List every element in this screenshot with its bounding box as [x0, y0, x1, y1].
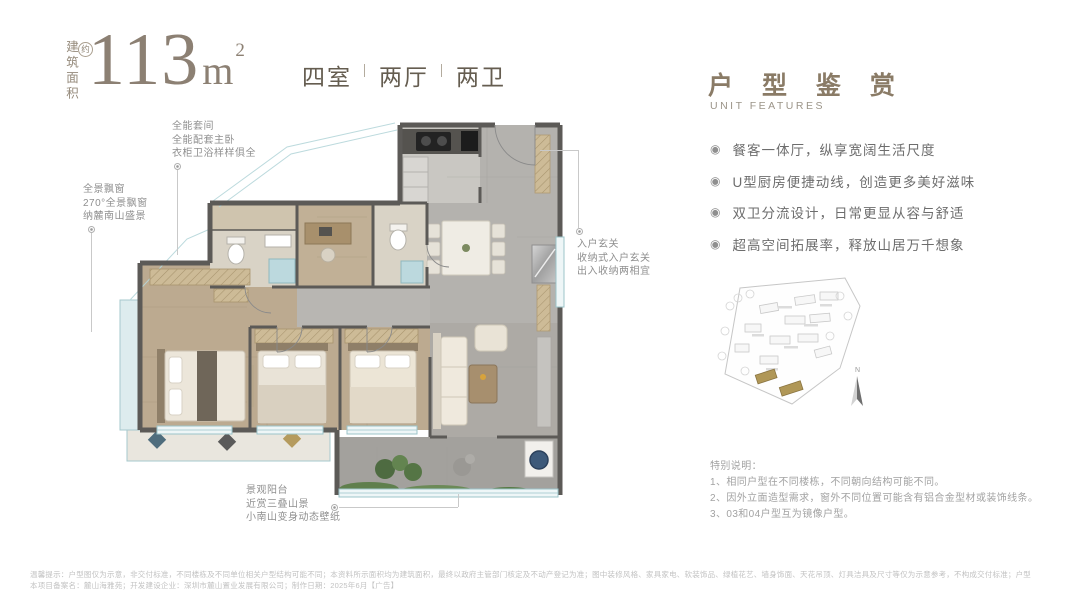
- bedroom2-bed: [256, 343, 328, 423]
- unit-features-subtitle: UNIT FEATURES: [710, 100, 825, 112]
- annotation-balcony-leader-h: [339, 507, 458, 508]
- unit-features-title: 户 型 鉴 赏: [708, 66, 906, 102]
- annotation-balcony-leader-v: [458, 494, 459, 507]
- bullet-icon: ◉: [710, 205, 720, 219]
- annotation-entrance: 入户玄关 收纳式入户玄关 出入收纳两相宜: [577, 238, 651, 279]
- area-number: 113: [88, 18, 199, 103]
- floorplan-flyer: 建筑面积 约 113m2 四室两厅两卫: [0, 0, 1080, 606]
- room-floors: [120, 125, 560, 495]
- spec-baths: 两卫: [456, 64, 506, 90]
- annotation-bay-marker: [88, 226, 95, 233]
- special-notes: 特别说明： 1、相同户型在不同楼栋，不同朝向结构可能不同。 2、因外立面造型需求…: [710, 459, 1038, 523]
- annotation-entrance-leader-v: [578, 150, 579, 228]
- notes-title: 特别说明：: [710, 459, 1038, 475]
- annotation-suite-leader: [177, 170, 178, 255]
- disclaimer-line1: 温馨提示：户型图仅为示意，非交付标准，不同楼栋及不同单位相关户型结构可能不同；本…: [30, 570, 1052, 581]
- spec-rooms: 四室: [302, 64, 352, 90]
- annotation-suite-marker: [174, 163, 181, 170]
- note-line: 3、03和04户型互为镜像户型。: [710, 507, 1038, 523]
- bedroom3-bed: [348, 343, 418, 423]
- area-superscript: 2: [235, 40, 245, 62]
- annotation-entrance-leader-h: [540, 150, 579, 151]
- compass-label: N: [855, 367, 860, 374]
- floor-plan-svg: [117, 117, 662, 522]
- annotation-entrance-marker: [576, 228, 583, 235]
- annotation-balcony: 景观阳台 近赏三叠山景 小南山变身动态壁纸: [246, 484, 341, 525]
- spec-divider: [441, 64, 442, 77]
- area-headline: 113m2: [88, 18, 245, 103]
- spec-divider: [364, 64, 365, 77]
- dining-set: [427, 221, 505, 275]
- site-map-svg: N: [700, 276, 895, 444]
- feature-item: ◉餐客一体厅，纵享宽阔生活尺度: [710, 139, 975, 159]
- feature-item: ◉U型厨房便捷动线，创造更多美好滋味: [710, 171, 975, 191]
- master-bed: [157, 349, 254, 423]
- disclaimer-line2: 本项目备案名：麓山海雅苑；开发建设企业：深圳市麓山置业发展有限公司；制作日期：2…: [30, 581, 1052, 592]
- note-line: 2、因外立面造型需求，窗外不同位置可能含有铝合金型材或装饰线条。: [710, 491, 1038, 507]
- annotation-bay-leader: [91, 233, 92, 332]
- spec-halls: 两厅: [379, 64, 429, 90]
- bullet-icon: ◉: [710, 174, 720, 188]
- annotation-bay: 全景飘窗 270°全景飘窗 纳麓南山盛景: [83, 183, 148, 224]
- bullet-icon: ◉: [710, 237, 720, 251]
- feature-item: ◉双卫分流设计，日常更显从容与舒适: [710, 202, 975, 222]
- feature-list: ◉餐客一体厅，纵享宽阔生活尺度 ◉U型厨房便捷动线，创造更多美好滋味 ◉双卫分流…: [710, 139, 975, 265]
- area-unit: m: [202, 47, 233, 94]
- north-compass: N: [851, 367, 863, 406]
- layout-spec: 四室两厅两卫: [302, 58, 506, 92]
- bullet-icon: ◉: [710, 142, 720, 156]
- note-line: 1、相同户型在不同楼栋，不同朝向结构可能不同。: [710, 475, 1038, 491]
- disclaimer: 温馨提示：户型图仅为示意，非交付标准，不同楼栋及不同单位相关户型结构可能不同；本…: [30, 570, 1052, 591]
- annotation-balcony-marker: [331, 504, 338, 511]
- feature-item: ◉超高空间拓展率，释放山居万千想象: [710, 234, 975, 254]
- annotation-suite: 全能套间 全能配套主卧 衣柜卫浴样样俱全: [172, 120, 256, 161]
